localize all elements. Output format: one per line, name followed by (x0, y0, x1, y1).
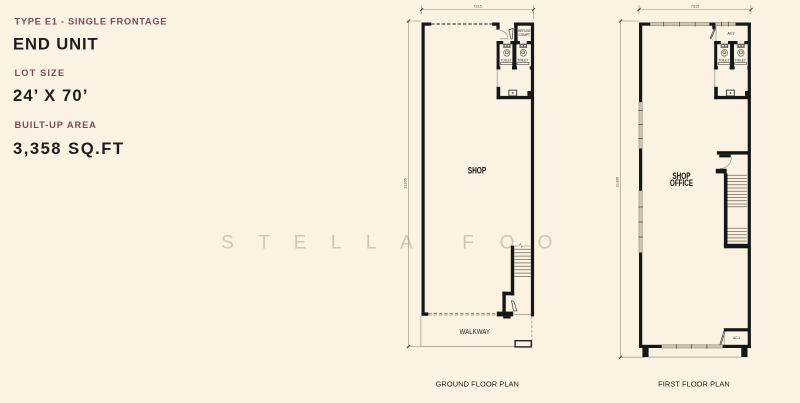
svg-text:L: L (366, 233, 377, 254)
svg-text:7315: 7315 (691, 5, 699, 9)
svg-text:BUILT-UP AREA: BUILT-UP AREA (15, 120, 97, 130)
svg-text:TYPE E1 - SINGLE FRONTAGE: TYPE E1 - SINGLE FRONTAGE (15, 17, 168, 27)
svg-text:WALKWAY: WALKWAY (460, 327, 491, 336)
svg-text:E: E (294, 233, 307, 254)
svg-text:FIRST FLOOR PLAN: FIRST FLOOR PLAN (658, 379, 730, 388)
svg-text:GROUND FLOOR PLAN: GROUND FLOOR PLAN (436, 379, 519, 388)
svg-text:LOT SIZE: LOT SIZE (15, 68, 66, 78)
svg-text:TOILET: TOILET (735, 59, 746, 63)
svg-text:SHOP: SHOP (468, 165, 487, 175)
svg-text:TOILET: TOILET (718, 59, 729, 63)
svg-text:AC 2: AC 2 (727, 31, 734, 35)
svg-text:OFFICE: OFFICE (670, 178, 693, 188)
svg-text:7315: 7315 (473, 5, 481, 9)
svg-text:O: O (538, 233, 553, 254)
svg-text:END UNIT: END UNIT (13, 34, 99, 53)
svg-text:TOILET: TOILET (517, 59, 528, 63)
svg-text:AC 1: AC 1 (733, 336, 740, 340)
svg-text:S: S (221, 233, 234, 254)
svg-text:F: F (462, 233, 474, 254)
svg-text:21336: 21336 (615, 177, 619, 188)
svg-text:T: T (258, 233, 270, 254)
svg-text:COMPT: COMPT (518, 33, 530, 37)
svg-text:21336: 21336 (404, 178, 408, 189)
svg-text:TOILET: TOILET (501, 59, 512, 63)
svg-text:A: A (400, 233, 413, 254)
svg-text:L: L (331, 233, 342, 254)
svg-text:24’ X 70’: 24’ X 70’ (13, 86, 88, 105)
svg-text:3,358 SQ.FT: 3,358 SQ.FT (13, 139, 125, 158)
